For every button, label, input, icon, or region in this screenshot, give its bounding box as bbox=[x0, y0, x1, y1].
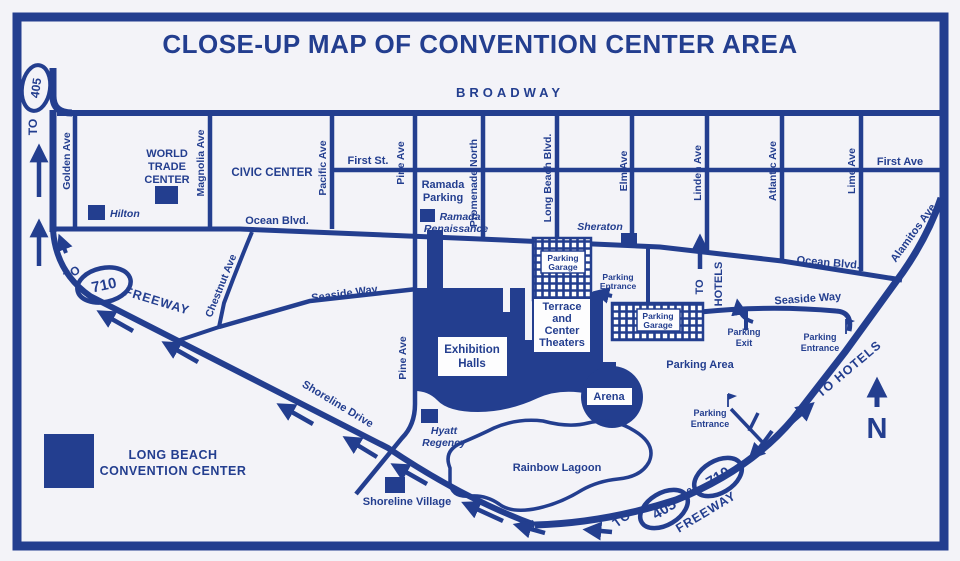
magnolia-ave-label: Magnolia Ave bbox=[195, 129, 207, 196]
close-up-map: CLOSE-UP MAP OF CONVENTION CENTER AREA bbox=[0, 0, 960, 561]
world-trade-line3: CENTER bbox=[144, 174, 189, 186]
to-hotels-hotels-label: HOTELS bbox=[713, 262, 725, 307]
legend-swatch bbox=[44, 434, 94, 488]
to-hotels-to-label: TO bbox=[694, 279, 706, 295]
sheraton-block bbox=[621, 233, 637, 247]
compass-n-label: N bbox=[867, 413, 888, 445]
exhibition-halls-line2: Halls bbox=[458, 358, 486, 370]
entrance-east-line2: Entrance bbox=[801, 343, 840, 353]
ramada-parking-line2: Parking bbox=[423, 192, 463, 204]
rainbow-lagoon-label: Rainbow Lagoon bbox=[513, 462, 602, 474]
broadway-label: BROADWAY bbox=[456, 85, 564, 100]
badge-405-topleft: 405 bbox=[28, 77, 45, 99]
garage-south-line2: Garage bbox=[643, 320, 673, 330]
hilton-block bbox=[88, 205, 105, 220]
pine-ave-label: Pine Ave bbox=[395, 141, 407, 185]
terrace-line3: Center bbox=[545, 325, 581, 337]
hyatt-line1: Hyatt bbox=[431, 425, 458, 437]
lime-ave-label: Lime Ave bbox=[846, 148, 858, 194]
terrace-line2: and bbox=[552, 313, 572, 325]
legend-line1: LONG BEACH bbox=[128, 448, 217, 462]
ramada-renaissance-block bbox=[420, 209, 435, 222]
first-st-label: First St. bbox=[348, 155, 389, 167]
world-trade-line2: TRADE bbox=[148, 161, 186, 173]
highway-arrow-west bbox=[590, 530, 612, 532]
shoreline-village-block bbox=[385, 477, 405, 493]
entrance-east-line1: Parking bbox=[803, 332, 836, 342]
to-405-label: TO bbox=[26, 119, 40, 135]
exit-line1: Parking bbox=[727, 327, 760, 337]
map-page: CLOSE-UP MAP OF CONVENTION CENTER AREA bbox=[0, 0, 960, 561]
civic-center-label: CIVIC CENTER bbox=[231, 167, 313, 179]
garage-north-line2: Garage bbox=[548, 262, 578, 272]
sheraton-label: Sheraton bbox=[577, 221, 623, 233]
pine-ave-lower-label: Pine Ave bbox=[397, 336, 409, 380]
exhibition-halls-label-box bbox=[437, 336, 508, 377]
first-ave-label: First Ave bbox=[877, 156, 923, 168]
shoreline-village-label: Shoreline Village bbox=[363, 496, 451, 508]
entrance-north-line2: Entrance bbox=[600, 281, 637, 291]
exhibition-halls-line1: Exhibition bbox=[444, 344, 500, 356]
hyatt-line2: Regency bbox=[422, 437, 467, 449]
hilton-label: Hilton bbox=[110, 208, 140, 220]
golden-ave-label: Golden Ave bbox=[61, 132, 73, 190]
world-trade-line1: WORLD bbox=[146, 148, 188, 160]
ramada-renaissance-line1: Ramada bbox=[440, 211, 481, 223]
entrance-south-line1: Parking bbox=[693, 408, 726, 418]
arena-label: Arena bbox=[593, 391, 625, 403]
exit-line2: Exit bbox=[736, 338, 753, 348]
atlantic-ave-label: Atlantic Ave bbox=[767, 141, 779, 201]
ocean-blvd-west-label: Ocean Blvd. bbox=[245, 215, 309, 227]
hyatt-regency-block bbox=[421, 409, 438, 423]
long-beach-blvd-label: Long Beach Blvd. bbox=[542, 134, 554, 223]
promenade-walkway-block bbox=[427, 230, 443, 290]
entrance-south-line2: Entrance bbox=[691, 419, 730, 429]
elm-ave-label: Elm Ave bbox=[618, 151, 630, 192]
linden-ave-label: Linden Ave bbox=[692, 145, 704, 201]
ramada-parking-line1: Ramada bbox=[422, 179, 466, 191]
terrace-line1: Terrace bbox=[543, 301, 582, 313]
parking-area-label: Parking Area bbox=[666, 359, 734, 371]
legend-line2: CONVENTION CENTER bbox=[100, 464, 247, 478]
terrace-line4: Theaters bbox=[539, 337, 585, 349]
pacific-ave-label: Pacific Ave bbox=[317, 140, 329, 195]
world-trade-center-block bbox=[155, 186, 178, 204]
ramada-renaissance-line2: Renaissance bbox=[424, 223, 488, 235]
map-title: CLOSE-UP MAP OF CONVENTION CENTER AREA bbox=[162, 29, 797, 59]
